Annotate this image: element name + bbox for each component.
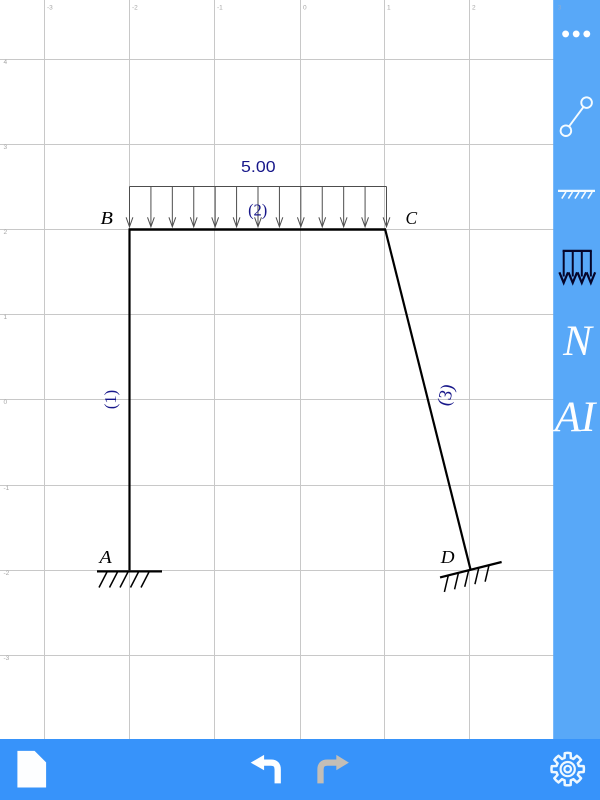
svg-text:(2): (2) xyxy=(248,200,267,219)
svg-text:D: D xyxy=(440,547,455,567)
svg-text:5.00: 5.00 xyxy=(241,159,276,176)
svg-text:-2: -2 xyxy=(132,5,138,12)
svg-text:4: 4 xyxy=(4,59,8,66)
svg-text:-3: -3 xyxy=(4,655,10,662)
svg-text:1: 1 xyxy=(4,314,8,321)
svg-text:C: C xyxy=(406,208,419,228)
svg-text:3: 3 xyxy=(4,144,8,151)
svg-text:-2: -2 xyxy=(4,570,10,577)
svg-text:-3: -3 xyxy=(47,5,53,12)
svg-text:AI: AI xyxy=(552,394,597,441)
svg-text:3: 3 xyxy=(558,5,562,12)
svg-text:(1): (1) xyxy=(101,390,120,409)
svg-text:2: 2 xyxy=(4,229,8,236)
svg-text:B: B xyxy=(101,208,113,228)
svg-text:-1: -1 xyxy=(217,5,223,12)
svg-text:2: 2 xyxy=(472,5,476,12)
svg-text:N: N xyxy=(562,318,594,365)
svg-text:1: 1 xyxy=(387,5,391,12)
svg-text:A: A xyxy=(98,547,112,567)
svg-text:-1: -1 xyxy=(4,485,10,492)
svg-text:0: 0 xyxy=(303,5,307,12)
svg-text:0: 0 xyxy=(4,399,8,406)
